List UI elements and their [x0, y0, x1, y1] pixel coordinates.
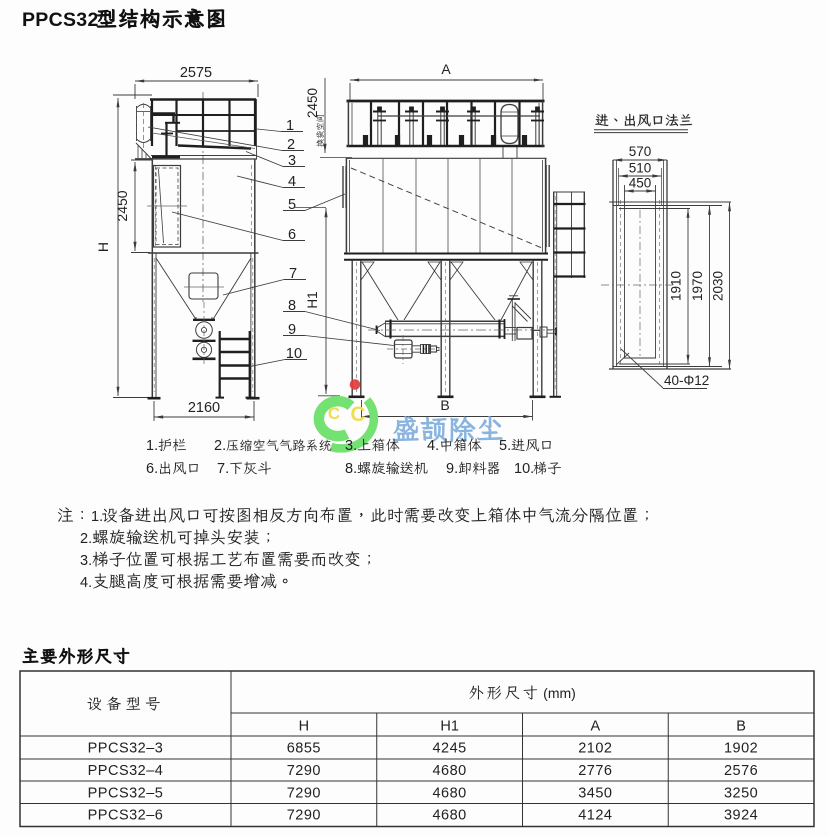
svg-text:1.: 1.	[146, 438, 158, 454]
svg-text:B: B	[440, 397, 449, 413]
svg-text:4.: 4.	[80, 575, 92, 591]
svg-text:PPCS32–3: PPCS32–3	[88, 741, 164, 757]
svg-text:7.: 7.	[217, 461, 229, 477]
svg-text:4680: 4680	[432, 808, 466, 824]
svg-text:4245: 4245	[432, 741, 466, 757]
svg-text:3.: 3.	[80, 553, 92, 569]
svg-text:4680: 4680	[432, 763, 466, 779]
svg-text:2776: 2776	[578, 763, 612, 779]
svg-text:450: 450	[629, 176, 652, 191]
svg-text:9.: 9.	[446, 461, 458, 477]
svg-text:570: 570	[629, 144, 652, 159]
svg-text:6855: 6855	[287, 741, 321, 757]
svg-text:2160: 2160	[188, 400, 220, 416]
svg-text:2030: 2030	[711, 271, 726, 301]
svg-text:1970: 1970	[690, 271, 705, 301]
svg-text:PPCS32–6: PPCS32–6	[88, 808, 164, 824]
svg-text:10.: 10.	[514, 461, 534, 477]
svg-text:2102: 2102	[578, 741, 612, 757]
svg-text:B: B	[736, 719, 746, 735]
svg-text:4124: 4124	[578, 808, 612, 824]
svg-text:4.: 4.	[427, 438, 439, 454]
svg-text:2.: 2.	[214, 438, 226, 454]
svg-text:1.: 1.	[91, 509, 103, 525]
svg-text:A: A	[441, 61, 451, 77]
svg-text:(mm): (mm)	[543, 685, 576, 701]
svg-text:PPCS32: PPCS32	[22, 9, 99, 31]
svg-text:2575: 2575	[180, 65, 212, 81]
svg-text:PPCS32–4: PPCS32–4	[88, 763, 164, 779]
svg-text:4680: 4680	[432, 785, 466, 801]
svg-text:510: 510	[629, 161, 652, 176]
svg-text:1910: 1910	[669, 271, 684, 301]
svg-text:3250: 3250	[724, 785, 758, 801]
svg-text:6.: 6.	[146, 461, 158, 477]
svg-text:H: H	[95, 242, 111, 252]
svg-text:3.: 3.	[345, 438, 357, 454]
svg-text:2450: 2450	[114, 190, 130, 221]
svg-text:H1: H1	[305, 291, 320, 308]
svg-text:C: C	[350, 403, 365, 426]
svg-text:H1: H1	[440, 719, 459, 735]
svg-text:C: C	[328, 404, 340, 423]
svg-text:3450: 3450	[578, 785, 612, 801]
svg-text:3924: 3924	[724, 808, 758, 824]
svg-text:8.: 8.	[345, 461, 357, 477]
svg-text:2576: 2576	[724, 763, 758, 779]
svg-text:1902: 1902	[724, 741, 758, 757]
svg-text:7290: 7290	[287, 763, 321, 779]
svg-text:2.: 2.	[80, 531, 92, 547]
svg-text:7290: 7290	[287, 785, 321, 801]
svg-text:A: A	[591, 719, 601, 735]
svg-text:5.: 5.	[499, 438, 511, 454]
svg-text:40-Φ12: 40-Φ12	[664, 373, 709, 388]
svg-text:7290: 7290	[287, 808, 321, 824]
svg-text:H: H	[299, 719, 309, 735]
svg-text:PPCS32–5: PPCS32–5	[88, 785, 164, 801]
svg-text:2450: 2450	[305, 88, 320, 118]
